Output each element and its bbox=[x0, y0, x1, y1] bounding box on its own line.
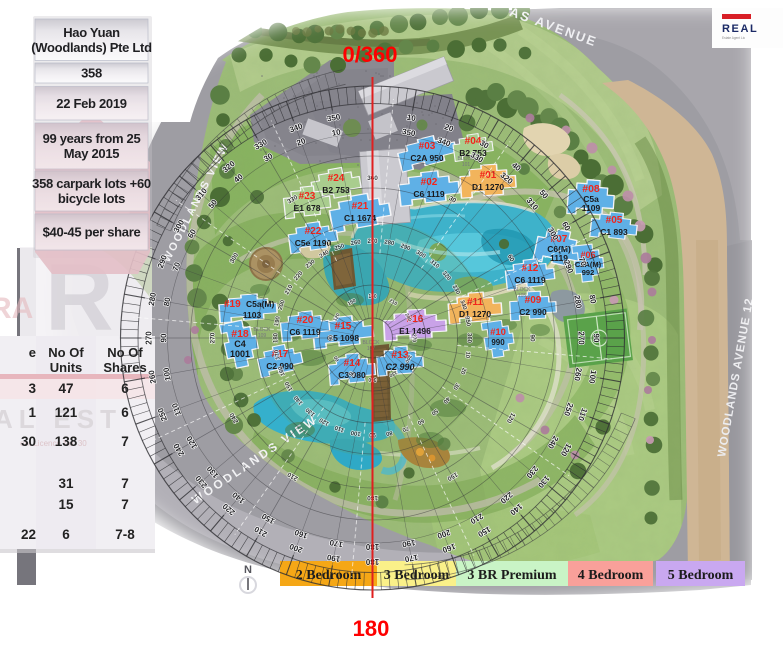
svg-text:105: 105 bbox=[518, 293, 527, 299]
svg-text:REAL: REAL bbox=[722, 23, 758, 35]
svg-text:7: 7 bbox=[121, 434, 129, 449]
svg-text:22 Feb 2019: 22 Feb 2019 bbox=[56, 96, 126, 111]
svg-text:$40-45 per share: $40-45 per share bbox=[43, 225, 141, 240]
svg-text:30: 30 bbox=[21, 434, 36, 449]
svg-text:47: 47 bbox=[58, 381, 73, 396]
svg-text:7: 7 bbox=[121, 497, 129, 512]
svg-text:31: 31 bbox=[58, 476, 74, 491]
svg-text:#24: #24 bbox=[328, 173, 345, 184]
svg-text:107: 107 bbox=[367, 346, 376, 352]
svg-text:270: 270 bbox=[577, 331, 586, 345]
svg-text:1001: 1001 bbox=[230, 349, 250, 359]
svg-text:C2A 950: C2A 950 bbox=[410, 153, 444, 163]
svg-text:138: 138 bbox=[55, 434, 78, 449]
svg-text:180: 180 bbox=[353, 616, 390, 641]
svg-text:6: 6 bbox=[121, 405, 129, 420]
svg-text:121: 121 bbox=[55, 405, 78, 420]
svg-text:90: 90 bbox=[160, 333, 169, 342]
svg-text:15: 15 bbox=[58, 497, 74, 512]
svg-text:N: N bbox=[244, 564, 252, 576]
svg-text:#10: #10 bbox=[490, 327, 506, 338]
svg-text:101: 101 bbox=[462, 162, 471, 168]
svg-text:RA: RA bbox=[0, 292, 33, 325]
svg-text:Hao Yuan: Hao Yuan bbox=[63, 25, 120, 40]
svg-text:3 BR Premium: 3 BR Premium bbox=[467, 568, 557, 583]
svg-text:360: 360 bbox=[466, 333, 472, 344]
svg-text:1109: 1109 bbox=[582, 203, 601, 213]
svg-text:C1 893: C1 893 bbox=[600, 227, 628, 237]
svg-text:May 2015: May 2015 bbox=[64, 146, 119, 161]
svg-text:90: 90 bbox=[529, 334, 536, 342]
svg-text:C2 990: C2 990 bbox=[519, 307, 547, 317]
svg-text:C6 1119: C6 1119 bbox=[413, 189, 444, 199]
svg-text:180: 180 bbox=[274, 332, 280, 343]
svg-text:270: 270 bbox=[145, 331, 154, 345]
svg-text:#09: #09 bbox=[525, 295, 542, 306]
svg-text:e: e bbox=[29, 345, 36, 360]
svg-text:#20: #20 bbox=[297, 315, 314, 326]
svg-text:No Of: No Of bbox=[48, 345, 84, 360]
svg-text:5 Bedroom: 5 Bedroom bbox=[668, 568, 734, 583]
svg-text:bicycle lots: bicycle lots bbox=[58, 191, 125, 206]
svg-text:#05: #05 bbox=[606, 215, 623, 226]
svg-text:C5e 1190: C5e 1190 bbox=[295, 238, 332, 248]
svg-text:990: 990 bbox=[491, 338, 505, 347]
svg-text:#01: #01 bbox=[480, 170, 497, 181]
svg-text:90: 90 bbox=[329, 335, 335, 341]
svg-text:7-8: 7-8 bbox=[115, 527, 135, 542]
svg-text:0/360: 0/360 bbox=[342, 42, 397, 67]
svg-text:6: 6 bbox=[62, 527, 70, 542]
svg-text:1: 1 bbox=[28, 405, 36, 420]
svg-text:C1 1674: C1 1674 bbox=[344, 213, 376, 223]
svg-text:(Woodlands) Pte Ltd: (Woodlands) Pte Ltd bbox=[31, 40, 152, 55]
svg-text:270: 270 bbox=[411, 334, 417, 343]
svg-text:22: 22 bbox=[21, 527, 36, 542]
svg-text:358 carpark lots +60: 358 carpark lots +60 bbox=[32, 176, 151, 191]
svg-text:4 Bedroom: 4 Bedroom bbox=[578, 568, 644, 583]
svg-text:#12: #12 bbox=[522, 263, 539, 274]
svg-text:Estate Agent Lic: Estate Agent Lic bbox=[722, 36, 745, 40]
svg-text:358: 358 bbox=[81, 66, 102, 81]
svg-text:7: 7 bbox=[121, 476, 129, 491]
svg-text:3: 3 bbox=[28, 381, 36, 396]
svg-text:Units: Units bbox=[50, 360, 83, 375]
svg-text:99 years from 25: 99 years from 25 bbox=[43, 131, 141, 146]
svg-text:C6 1119: C6 1119 bbox=[289, 327, 320, 337]
svg-text:#03: #03 bbox=[419, 141, 436, 152]
svg-text:C4: C4 bbox=[234, 339, 246, 349]
svg-text:90: 90 bbox=[592, 334, 601, 343]
svg-text:992: 992 bbox=[582, 268, 595, 277]
svg-text:270: 270 bbox=[210, 332, 217, 343]
svg-text:#21: #21 bbox=[352, 201, 369, 212]
